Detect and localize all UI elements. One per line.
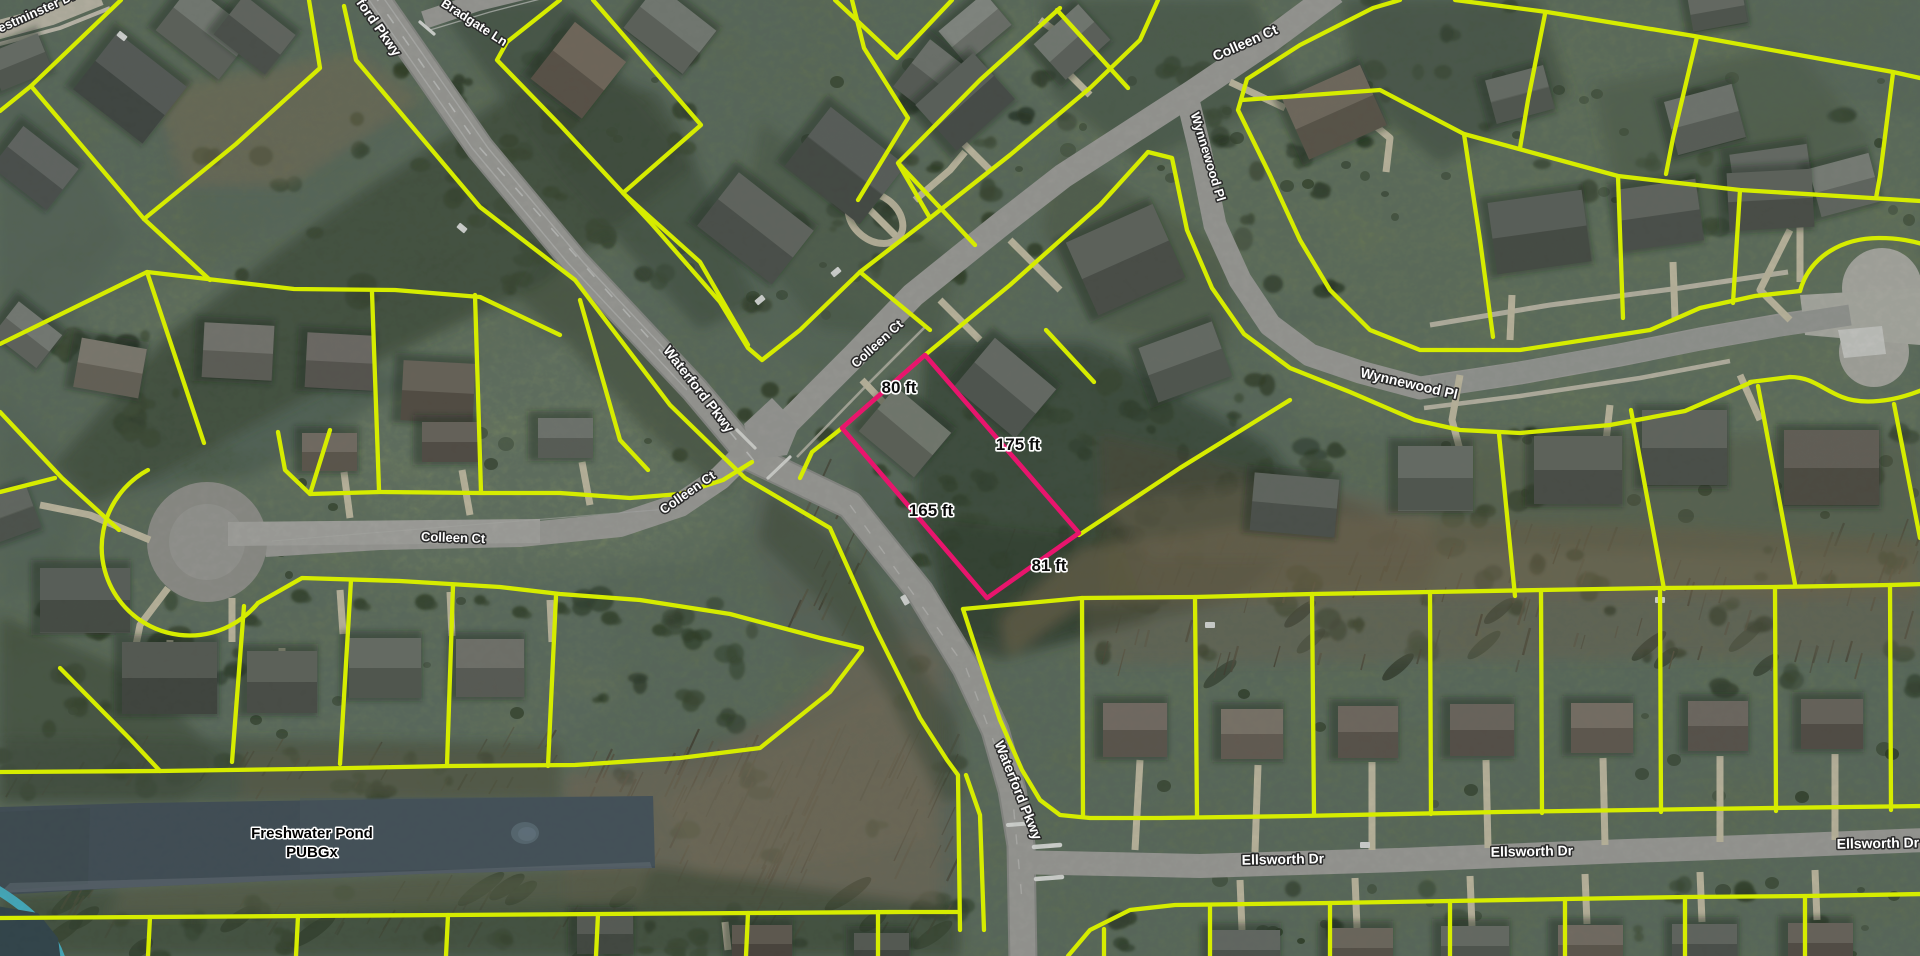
svg-text:Ellsworth Dr: Ellsworth Dr bbox=[1837, 834, 1920, 851]
svg-text:Colleen Ct: Colleen Ct bbox=[421, 529, 486, 546]
svg-text:Freshwater Pond: Freshwater Pond bbox=[251, 825, 373, 842]
svg-text:Ellsworth Dr: Ellsworth Dr bbox=[1491, 842, 1574, 859]
svg-text:Ellsworth Dr: Ellsworth Dr bbox=[1242, 850, 1325, 867]
svg-text:PUBGx: PUBGx bbox=[286, 844, 338, 861]
svg-text:165 ft: 165 ft bbox=[909, 501, 954, 520]
svg-text:81 ft: 81 ft bbox=[1032, 556, 1067, 575]
svg-text:175 ft: 175 ft bbox=[996, 435, 1041, 454]
svg-text:80 ft: 80 ft bbox=[882, 378, 917, 397]
